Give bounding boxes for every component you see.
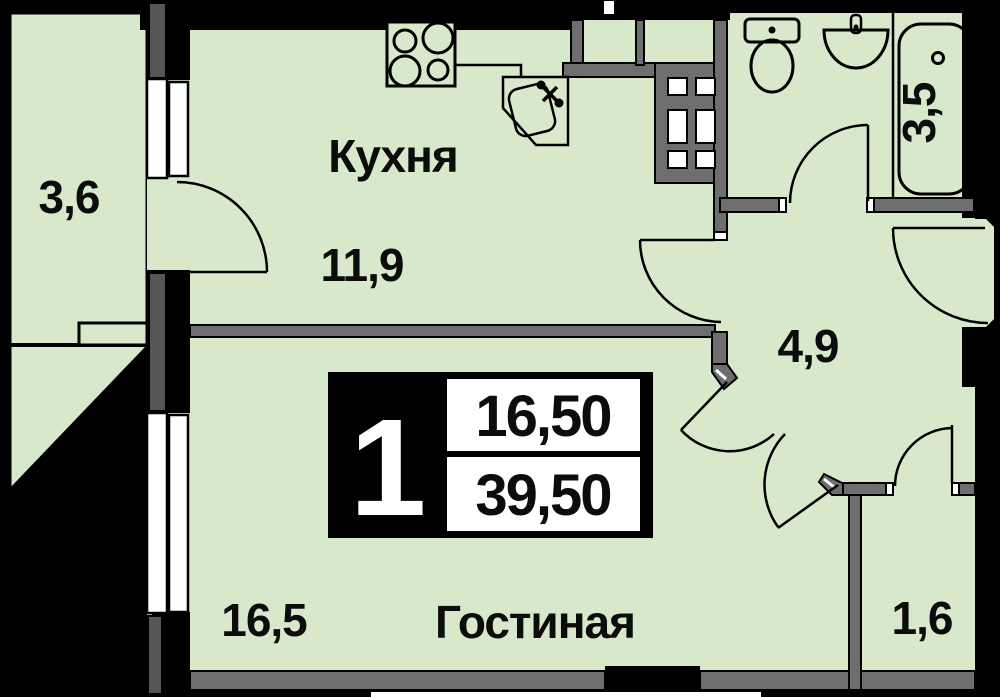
toilet-button [769, 27, 776, 34]
left-wall [147, 0, 190, 697]
kitchen-faucet-knob [556, 100, 562, 106]
vent-hole [696, 110, 715, 143]
badge-rooms-count: 1 [350, 391, 427, 545]
washbasin-faucet-dot [854, 25, 859, 30]
vent-hole [668, 78, 687, 95]
badge-living-area: 16,50 [475, 384, 610, 449]
living-window-inner [169, 415, 188, 612]
bottom-wall-segment-left [190, 671, 605, 690]
living-name-label: Гостиная [435, 596, 635, 648]
top-wall-middle [577, 0, 730, 20]
storage-door-jamb-left [886, 483, 893, 495]
left-pillar-middle-lining [149, 273, 166, 411]
storage-divider-wall [849, 495, 861, 690]
vent-hole [696, 78, 715, 95]
kitchen-name-label: Кухня [328, 130, 457, 182]
floor-plan-canvas: 1 16,50 39,50 3,6 Кухня 11,9 3,5 4,9 16,… [0, 0, 1000, 697]
top-wall-left [140, 0, 577, 30]
niche-divider [636, 20, 644, 65]
left-pillar-top-lining [149, 3, 166, 78]
storage-door-jamb-right [952, 483, 959, 495]
bathroom-door-jamb-left [779, 198, 786, 212]
storage-top-wall-right [959, 483, 975, 495]
niche-wall-vertical [571, 20, 583, 66]
balcony-area-label: 3,6 [39, 171, 100, 223]
kitchen-door-jamb [714, 232, 727, 240]
vent-hole [696, 151, 715, 168]
kitchen-faucet-knob [538, 82, 544, 88]
kitchen-area-label: 11,9 [321, 239, 404, 291]
storage-top-wall-left [843, 483, 886, 495]
hallway-area-label: 4,9 [778, 320, 839, 372]
bathroom-wall-right [874, 198, 974, 212]
kitchen-window-inner [169, 82, 188, 176]
right-wall-step [962, 327, 982, 387]
bottom-wall-segment-right [861, 671, 975, 690]
bathroom-wall-left [720, 198, 780, 212]
vent-hole [668, 151, 687, 168]
left-pillar-bottom-lining [148, 616, 162, 694]
kitchen-window-outer [147, 79, 167, 178]
bottom-wall-segment-middle [700, 671, 852, 690]
living-area-label: 16,5 [221, 594, 307, 646]
storage-area-label: 1,6 [892, 592, 953, 644]
bottom-exterior-line [371, 692, 761, 697]
divider-stub [712, 332, 727, 368]
balcony-threshold [79, 323, 147, 345]
bathroom-area-label: 3,5 [893, 82, 945, 143]
area-badge: 1 16,50 39,50 [328, 372, 653, 545]
entrance-doorway-notch [975, 219, 994, 327]
living-window-outer [147, 413, 167, 613]
top-wall-right [730, 0, 1000, 13]
kitchen-living-divider [190, 325, 715, 337]
vent-hole [668, 110, 687, 143]
top-wall-joint-mark [603, 0, 615, 15]
badge-total-area: 39,50 [475, 463, 610, 528]
